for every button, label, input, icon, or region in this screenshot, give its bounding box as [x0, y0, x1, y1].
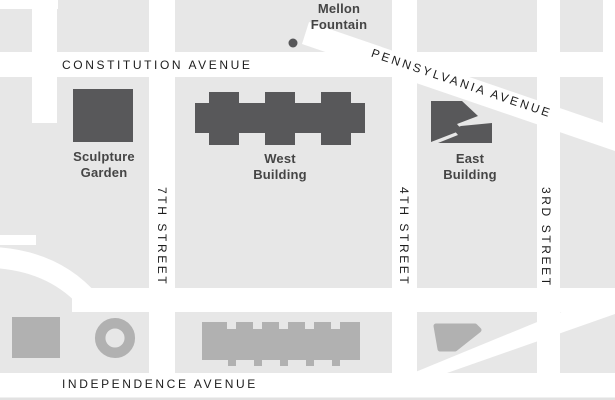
mellon-fountain-dot — [289, 39, 298, 48]
sculpture-garden-line2: Garden — [81, 165, 128, 180]
sculpture-garden-building — [73, 89, 133, 142]
west-building-label: West Building — [220, 151, 340, 182]
west-building-line2: Building — [253, 167, 307, 182]
mellon-fountain-line2: Fountain — [311, 17, 367, 32]
fourth-street-label: 4TH STREET — [397, 187, 411, 286]
east-building-line2: Building — [443, 167, 497, 182]
left-edge-notch-street — [0, 235, 36, 245]
national-gallery-area-map: Mellon Fountain Sculpture Garden West Bu… — [0, 0, 615, 400]
southwest-square-building — [12, 317, 60, 358]
right-edge-street — [603, 0, 615, 140]
sculpture-garden-label: Sculpture Garden — [44, 149, 164, 180]
constitution-avenue-label: CONSTITUTION AVENUE — [62, 58, 253, 72]
seventh-street-label: 7TH STREET — [155, 187, 169, 286]
mellon-fountain-line1: Mellon — [318, 1, 360, 16]
independence-avenue-label: INDEPENDENCE AVENUE — [62, 377, 258, 391]
sculpture-garden-line1: Sculpture — [73, 149, 135, 164]
east-building-label: East Building — [410, 151, 530, 182]
west-building-footprint — [195, 92, 365, 145]
third-street-label: 3RD STREET — [539, 187, 553, 288]
mellon-fountain-label: Mellon Fountain — [289, 1, 389, 32]
madison-mall-road — [72, 288, 615, 312]
east-building-line1: East — [456, 151, 484, 166]
west-building-line1: West — [264, 151, 296, 166]
